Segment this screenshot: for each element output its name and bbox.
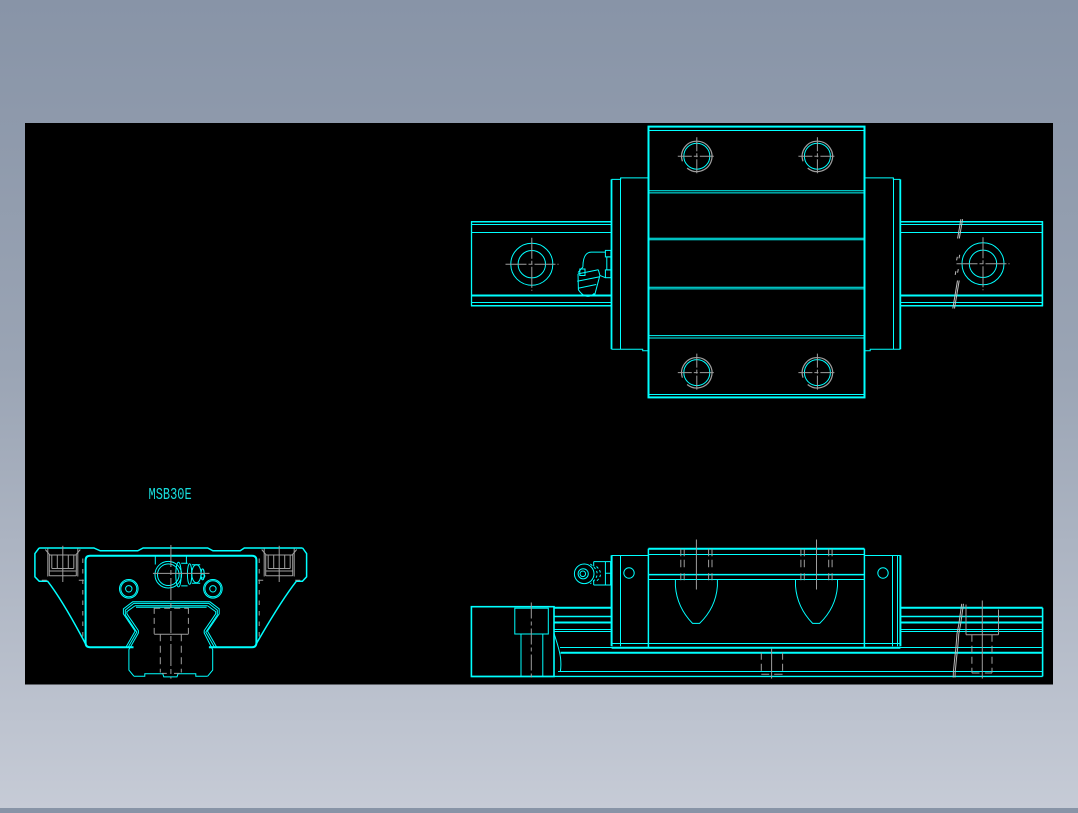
svg-text:MSB30E: MSB30E (149, 486, 192, 504)
